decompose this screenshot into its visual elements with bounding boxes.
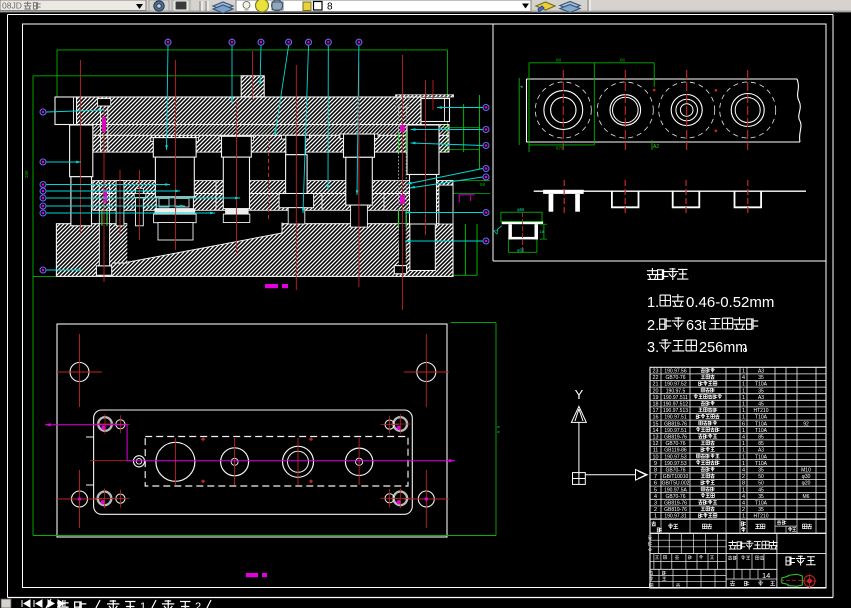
svg-text:18: 18	[540, 229, 545, 234]
svg-text:5: 5	[654, 487, 657, 493]
svg-text:876: 876	[556, 146, 564, 151]
svg-text:1.: 1.	[647, 295, 659, 311]
svg-text:9: 9	[654, 461, 657, 467]
svg-text:GB819-76: GB819-76	[664, 501, 687, 507]
svg-text:6: 6	[654, 481, 657, 487]
svg-text:16: 16	[653, 415, 659, 421]
svg-text:HT210: HT210	[753, 514, 768, 520]
svg-text:T10A: T10A	[755, 421, 768, 427]
svg-text:A3: A3	[758, 395, 764, 401]
svg-text:1: 1	[742, 395, 745, 401]
svg-text:1: 1	[742, 415, 745, 421]
svg-text:4: 4	[654, 494, 657, 500]
svg-text:190.97.513: 190.97.513	[663, 408, 688, 414]
svg-text:66: 66	[620, 58, 626, 63]
svg-text:3.: 3.	[647, 340, 659, 356]
svg-text:1: 1	[742, 428, 745, 434]
svg-text:50: 50	[758, 481, 764, 487]
svg-text:35: 35	[758, 507, 764, 513]
svg-text:GB70-76: GB70-76	[665, 468, 685, 474]
svg-text:8: 8	[742, 481, 745, 487]
svg-text:T10A: T10A	[755, 501, 768, 507]
svg-text:T10A: T10A	[755, 382, 768, 388]
svg-text:13: 13	[653, 435, 659, 441]
svg-text:2: 2	[742, 474, 745, 480]
svg-text:35: 35	[758, 375, 764, 381]
svg-text:22: 22	[653, 375, 659, 381]
svg-text:190.97.511: 190.97.511	[663, 395, 688, 401]
svg-text:2.: 2.	[647, 318, 659, 334]
svg-text:GB/T5U.002: GB/T5U.002	[662, 481, 690, 487]
svg-text:17: 17	[653, 408, 659, 414]
svg-text:φ30: φ30	[802, 474, 811, 480]
svg-text:GB819-76: GB819-76	[664, 421, 687, 427]
svg-text:50: 50	[758, 474, 764, 480]
svg-text:88: 88	[480, 182, 486, 187]
svg-text:GB819-76: GB819-76	[664, 435, 687, 441]
svg-text:2: 2	[742, 507, 745, 513]
svg-text:08JD: 08JD	[2, 1, 22, 11]
svg-text:1: 1	[742, 514, 745, 520]
svg-text:6: 6	[742, 421, 745, 427]
svg-text:4: 4	[742, 468, 745, 474]
svg-text:T10A: T10A	[755, 461, 768, 467]
svg-text:T10A: T10A	[755, 415, 768, 421]
svg-text:250: 250	[24, 170, 29, 178]
svg-text:A3: A3	[758, 448, 764, 454]
svg-text:1: 1	[742, 369, 745, 375]
svg-text:15: 15	[653, 421, 659, 427]
svg-text:φ20: φ20	[802, 481, 811, 487]
svg-text:85: 85	[758, 435, 764, 441]
svg-text:3: 3	[654, 501, 657, 507]
svg-text:φ32: φ32	[517, 247, 525, 252]
svg-text:21: 21	[653, 382, 659, 388]
svg-text:M6: M6	[803, 494, 810, 500]
svg-text:18: 18	[653, 402, 659, 408]
svg-text:4: 4	[742, 501, 745, 507]
svg-text:35: 35	[758, 468, 764, 474]
svg-text:190.97.5: 190.97.5	[666, 388, 686, 394]
svg-text:1: 1	[742, 461, 745, 467]
svg-text:1: 1	[742, 441, 745, 447]
svg-text:2: 2	[654, 507, 657, 513]
svg-text:20: 20	[653, 388, 659, 394]
svg-text:7: 7	[654, 474, 657, 480]
svg-text:1: 1	[654, 514, 657, 520]
svg-text:256mm: 256mm	[699, 340, 747, 356]
svg-text:1: 1	[742, 402, 745, 408]
svg-text:1: 1	[742, 448, 745, 454]
svg-text:1: 1	[140, 601, 146, 608]
svg-text:1: 1	[742, 454, 745, 460]
svg-text:63t: 63t	[686, 318, 706, 334]
svg-text:GB70-76: GB70-76	[665, 494, 685, 500]
svg-text:45: 45	[758, 487, 764, 493]
svg-text:0.46-0.52mm: 0.46-0.52mm	[686, 294, 774, 311]
svg-text:12: 12	[653, 441, 659, 447]
svg-text:8: 8	[654, 468, 657, 474]
svg-text:1: 1	[742, 487, 745, 493]
svg-text:190.97.31: 190.97.31	[664, 514, 686, 520]
svg-text:45: 45	[758, 402, 764, 408]
svg-text:92: 92	[803, 421, 809, 427]
svg-text:14: 14	[762, 571, 770, 580]
svg-text:88: 88	[556, 58, 562, 63]
svg-text:w: w	[497, 430, 500, 434]
svg-text:1: 1	[742, 382, 745, 388]
svg-text:4: 4	[742, 494, 745, 500]
svg-text:GB70-76: GB70-76	[665, 375, 685, 381]
svg-text:4: 4	[742, 435, 745, 441]
svg-text:8: 8	[327, 2, 333, 13]
svg-text:GB/T10010: GB/T10010	[663, 474, 689, 480]
svg-text:Y: Y	[575, 387, 584, 402]
svg-text:14: 14	[653, 428, 659, 434]
svg-text:GB819-76: GB819-76	[664, 507, 687, 513]
svg-text:190.97.53: 190.97.53	[664, 454, 686, 460]
svg-text:A2: A2	[653, 144, 659, 150]
svg-text:85: 85	[758, 441, 764, 447]
svg-text:190.97.512: 190.97.512	[663, 402, 688, 408]
svg-text:190.97.53: 190.97.53	[664, 461, 686, 467]
svg-text:M10: M10	[801, 468, 811, 474]
svg-text:GB70-76: GB70-76	[665, 441, 685, 447]
svg-text:T10A: T10A	[755, 428, 768, 434]
svg-text:190.97.5A: 190.97.5A	[664, 487, 687, 493]
svg-text:35: 35	[758, 388, 764, 394]
svg-text:1: 1	[742, 388, 745, 394]
svg-text:190.97.51: 190.97.51	[664, 428, 686, 434]
svg-text:23: 23	[653, 369, 659, 375]
svg-text:190.97.51: 190.97.51	[664, 415, 686, 421]
svg-text:w: w	[497, 425, 500, 429]
svg-text:A3: A3	[758, 369, 764, 375]
svg-text:4: 4	[742, 375, 745, 381]
svg-text:190.97.52: 190.97.52	[664, 382, 686, 388]
svg-text:35: 35	[758, 494, 764, 500]
svg-text:T10A: T10A	[755, 454, 768, 460]
svg-text:11: 11	[653, 448, 659, 454]
svg-text:φ66: φ66	[517, 207, 525, 212]
svg-text:19: 19	[653, 395, 659, 401]
svg-text:2: 2	[195, 601, 201, 608]
svg-text:1: 1	[742, 408, 745, 414]
svg-text:HT210: HT210	[753, 408, 768, 414]
svg-text:190.97.56: 190.97.56	[664, 369, 686, 375]
svg-text:10: 10	[653, 454, 659, 460]
svg-text:GB119-86: GB119-86	[664, 448, 687, 454]
